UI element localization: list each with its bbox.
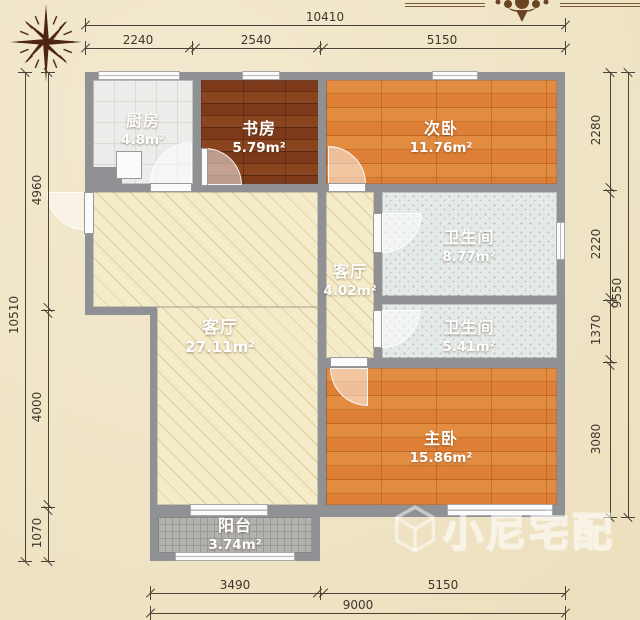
room-living-floor-lower [157,307,318,505]
window-bedroom2-top [432,71,478,80]
window-living-balcony [190,504,268,516]
study-door-leaf [201,148,208,186]
dim-bottom-seg-1: 5150 [413,578,473,592]
dim-bottom-total-line [150,613,565,614]
dim-left-seg-1: 4000 [30,377,44,437]
dim-top-seg-0: 2240 [108,33,168,47]
dim-bottom-seg-line [150,593,565,594]
watermark-cube-icon [394,505,436,553]
master-door-leaf [330,357,368,367]
dim-left-total-line [25,72,26,561]
entry-door-leaf [84,192,94,234]
dim-top-seg-line [85,48,565,49]
kitchen-door-leaf [150,183,192,192]
kitchen-door-leaf2 [116,151,142,179]
dim-right-seg-1: 2220 [589,214,603,274]
dim-left-seg-line [48,72,49,561]
dim-left-seg-0: 4960 [30,160,44,220]
dim-right-total-line [628,72,629,517]
dim-left-total: 10510 [7,285,21,345]
dim-right-seg-3: 3080 [589,409,603,469]
window-study-top [242,71,280,80]
bedroom2-door-leaf [328,183,366,192]
dim-left-seg-2: 1070 [30,503,44,563]
ornament-icon [405,0,640,24]
window-bathroom1-right [556,222,565,260]
compass-rose-icon [6,2,86,86]
bathroom2-door-leaf [373,310,382,348]
dim-bottom-seg-0: 3490 [205,578,265,592]
dim-top-seg-2: 5150 [412,33,472,47]
dim-right-seg-2: 1370 [589,300,603,360]
room-balcony-floor [158,517,312,553]
dim-top-total: 10410 [295,10,355,24]
window-balcony-bottom [175,552,295,561]
dim-right-seg-0: 2280 [589,100,603,160]
room-hallway-floor [326,192,374,358]
floorplan-page: 厨房 4.8m² 书房 5.79m² 次卧 11.76m² 卫生间 8.77m²… [0,0,640,620]
room-living-floor-upper [93,192,318,307]
room-bathroom1-floor [382,192,557,296]
dim-top-total-line [85,25,565,26]
watermark-text: 小尼宅配 [443,500,615,558]
dim-bottom-total: 9000 [328,598,388,612]
dim-top-seg-1: 2540 [226,33,286,47]
window-kitchen-top [98,71,180,80]
entry-door-arc [47,192,85,230]
watermark: 小尼宅配 [394,500,615,558]
bathroom1-door-leaf [373,213,382,253]
dim-right-total: 9550 [610,263,624,323]
